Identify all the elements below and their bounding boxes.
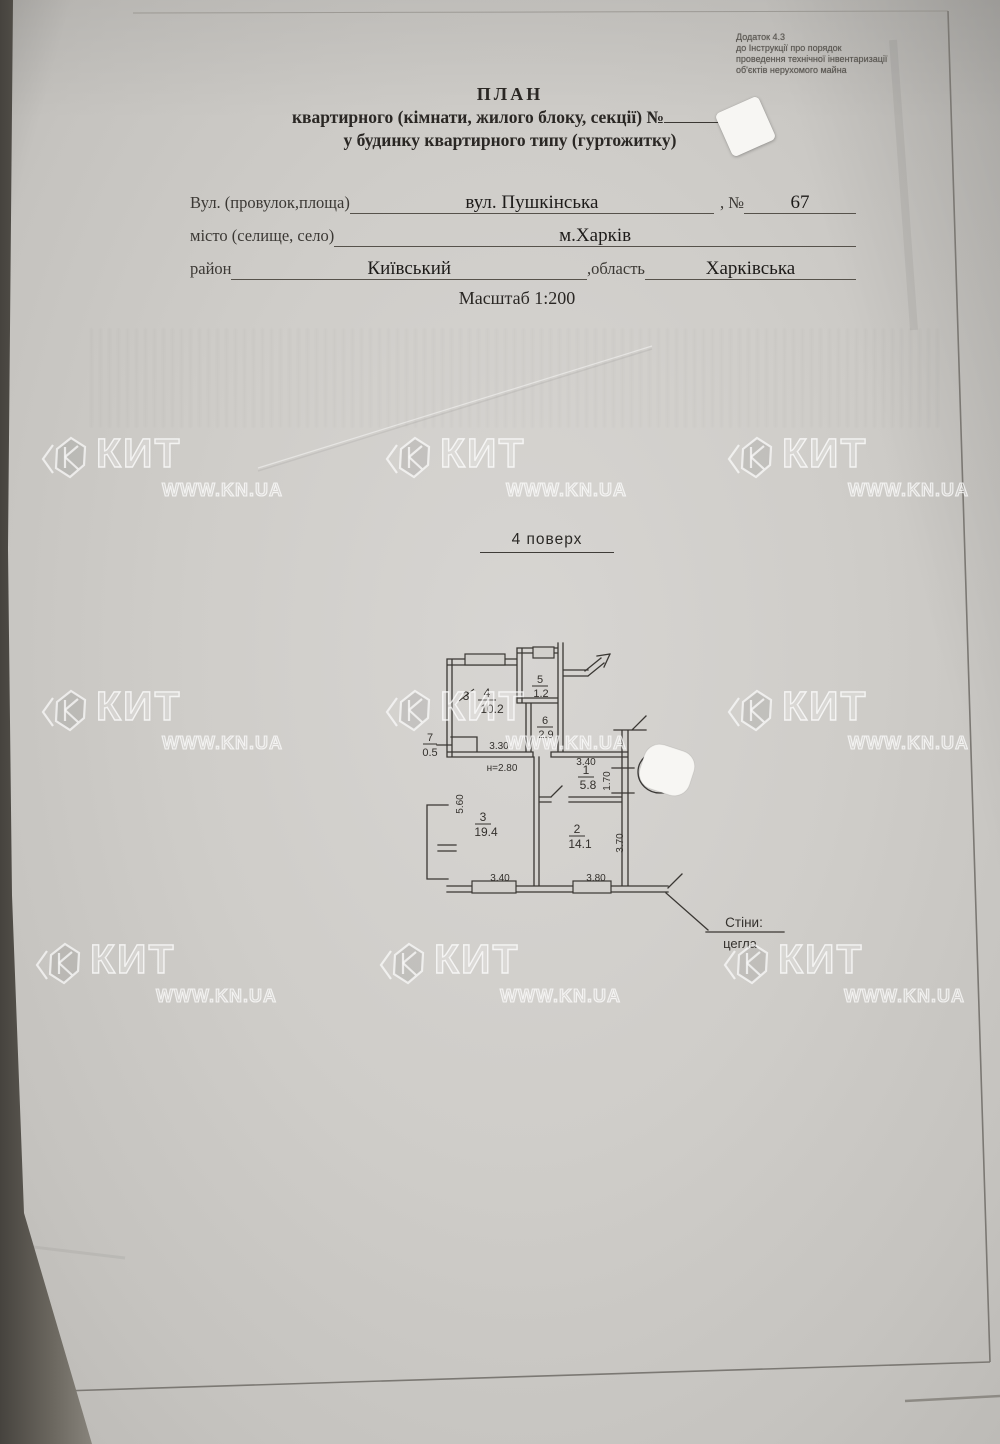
room5-number: 5 bbox=[537, 674, 543, 686]
room6-area: 2.9 bbox=[538, 729, 553, 741]
watermark-site: WWW.KN.UA bbox=[844, 987, 965, 1005]
floor-label-block: 4 поверх bbox=[480, 531, 614, 553]
title-line2-text: квартирного (кімнати, жилого блоку, секц… bbox=[292, 107, 664, 127]
white-sticker-on-plan bbox=[635, 740, 699, 800]
appendix-note: Додаток 4.3 до Інструкції про порядок пр… bbox=[736, 32, 916, 76]
scanned-floorplan-document: Додаток 4.3 до Інструкції про порядок пр… bbox=[0, 0, 1000, 1444]
watermark-site: WWW.KN.UA bbox=[162, 481, 283, 499]
room4-old-number: 3 bbox=[463, 689, 470, 703]
room6-number: 6 bbox=[542, 715, 548, 727]
appendix-line: проведення технічної інвентаризації bbox=[736, 54, 916, 65]
room7-number: 7 bbox=[427, 732, 433, 744]
dim-corridor: 3.30 bbox=[489, 741, 509, 752]
room5-area: 1.2 bbox=[533, 688, 548, 700]
kit-logo-icon bbox=[384, 433, 432, 483]
city-label: місто (селище, село) bbox=[190, 226, 334, 247]
watermark: КИТ WWW.KN.UA bbox=[40, 433, 280, 507]
watermark: КИТ WWW.KN.UA bbox=[384, 433, 624, 507]
district-value: Київський bbox=[231, 259, 586, 280]
watermark-brand: КИТ bbox=[440, 433, 526, 474]
address-form: Вул. (провулок,площа) вул. Пушкінська , … bbox=[190, 183, 856, 282]
street-label: Вул. (провулок,площа) bbox=[190, 193, 350, 214]
photo-left-edge bbox=[0, 0, 95, 1444]
room2-number: 2 bbox=[574, 822, 581, 836]
floor-underline bbox=[480, 552, 614, 553]
room3-area: 19.4 bbox=[474, 825, 498, 839]
watermark-site: WWW.KN.UA bbox=[848, 734, 969, 752]
number-value: 67 bbox=[744, 193, 856, 214]
room7-area: 0.5 bbox=[422, 747, 437, 759]
room3-number: 3 bbox=[480, 810, 487, 824]
room4-area: 10.2 bbox=[480, 702, 504, 716]
watermark-site: WWW.KN.UA bbox=[162, 734, 283, 752]
city-value: м.Харків bbox=[334, 226, 856, 247]
dim-room1-right: 1.70 bbox=[602, 771, 613, 791]
walls-note-value: цегла bbox=[723, 936, 758, 951]
dim-room2-bottom: 3.80 bbox=[586, 873, 606, 884]
street-row: Вул. (провулок,площа) вул. Пушкінська , … bbox=[190, 183, 856, 214]
appendix-line: Додаток 4.3 bbox=[736, 32, 916, 43]
room-fraction-lines bbox=[423, 686, 594, 836]
room4-number: 4 bbox=[484, 686, 491, 700]
dim-room3-left: 5.60 bbox=[455, 794, 466, 814]
walls-note-label: Стіни: bbox=[725, 915, 763, 930]
floor-plan-drawing: 3 4 10.2 1 5.8 2 14.1 3 19.4 5 1.2 6 2.9… bbox=[394, 630, 796, 962]
region-value: Харківська bbox=[645, 259, 856, 280]
watermark-brand: КИТ bbox=[90, 939, 176, 980]
appendix-line: об'єктів нерухомого майна bbox=[736, 65, 916, 76]
street-value: вул. Пушкінська bbox=[350, 193, 714, 214]
district-row: район Київський ,область Харківська bbox=[190, 249, 856, 280]
watermark-brand: КИТ bbox=[96, 686, 182, 727]
kit-logo-icon bbox=[40, 686, 88, 736]
room2-area: 14.1 bbox=[568, 837, 592, 851]
kit-logo-icon bbox=[34, 939, 82, 989]
appendix-line: до Інструкції про порядок bbox=[736, 43, 916, 54]
room1-area: 5.8 bbox=[580, 778, 597, 792]
city-row: місто (селище, село) м.Харків bbox=[190, 216, 856, 247]
watermark-brand: КИТ bbox=[782, 433, 868, 474]
floor-label: 4 поверх bbox=[512, 531, 583, 548]
watermark-brand: КИТ bbox=[96, 433, 182, 474]
dim-room1-top: 3.40 bbox=[576, 757, 596, 768]
scale-label: Масштаб 1:200 bbox=[412, 288, 622, 309]
watermark-site: WWW.KN.UA bbox=[500, 987, 621, 1005]
district-label: район bbox=[190, 259, 231, 280]
scan-texture bbox=[90, 328, 940, 428]
watermark-site: WWW.KN.UA bbox=[848, 481, 969, 499]
kit-logo-icon bbox=[726, 433, 774, 483]
title-heading: ПЛАН bbox=[200, 84, 820, 105]
dim-room3-bottom: 3.40 bbox=[490, 873, 510, 884]
watermark: КИТ WWW.KN.UA bbox=[34, 939, 274, 1013]
watermark: КИТ WWW.KN.UA bbox=[726, 433, 966, 507]
watermark: КИТ WWW.KN.UA bbox=[40, 686, 280, 760]
ceiling-height-note: н=2.80 bbox=[487, 763, 518, 774]
kit-logo-icon bbox=[40, 433, 88, 483]
number-label: , № bbox=[720, 193, 744, 214]
region-label: ,область bbox=[587, 259, 645, 280]
watermark-site: WWW.KN.UA bbox=[156, 987, 277, 1005]
watermark-site: WWW.KN.UA bbox=[506, 481, 627, 499]
dim-room2-right: 3.70 bbox=[615, 833, 626, 853]
